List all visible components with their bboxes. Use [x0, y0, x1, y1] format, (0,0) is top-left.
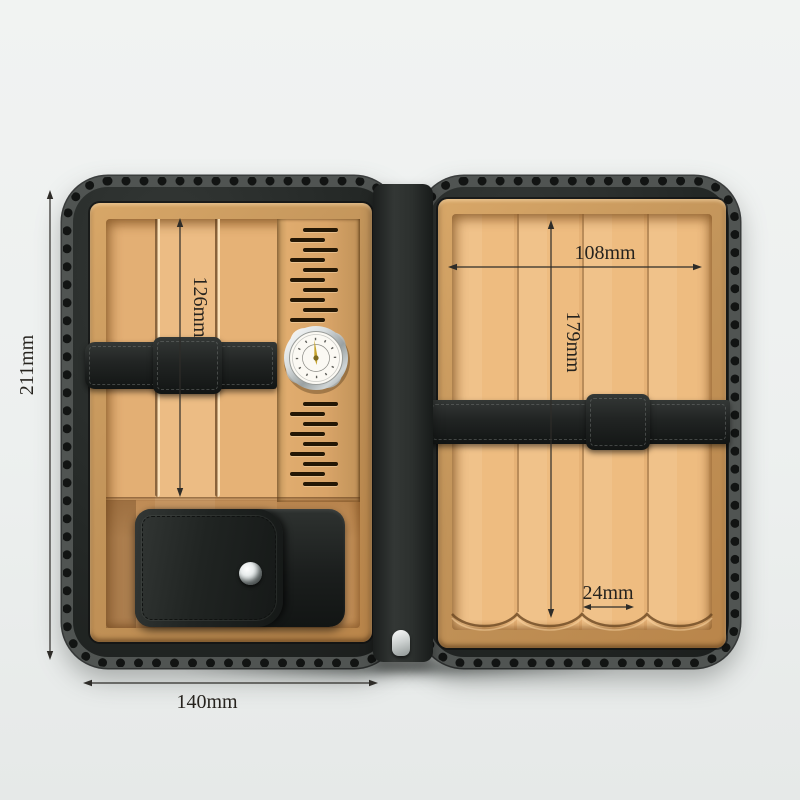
- right-cigar-strap: [428, 400, 730, 444]
- product-photo-humidor-case: 211mm 126mm 140mm 108mm 179mm 24mm: [0, 0, 800, 800]
- zipper-pull-icon: [392, 630, 410, 656]
- case-spine: [373, 184, 433, 662]
- right-strap-keeper: [586, 394, 650, 450]
